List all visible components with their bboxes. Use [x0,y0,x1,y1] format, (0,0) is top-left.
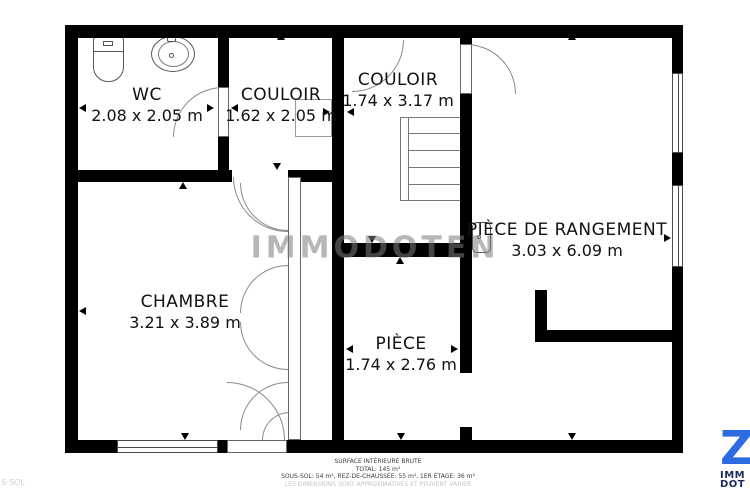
wall-segment [672,153,683,185]
dimension-arrow [79,307,86,315]
dimension-arrow [207,104,214,112]
room-label-couloir-2: COULOIR 1.74 x 3.17 m [342,70,454,111]
room-label-chambre: CHAMBRE 3.21 x 3.89 m [129,292,241,333]
room-dimensions: 1.74 x 2.76 m [345,354,457,375]
door-leaf [460,44,472,94]
surface-breakdown: SOUS-SOL: 54 m², REZ-DE-CHAUSSÉE: 55 m²,… [281,473,475,481]
room-label-wc: WC 2.08 x 2.05 m [91,85,203,126]
wall-segment [672,267,683,453]
stair-tread [408,133,460,134]
brand-logo-text-2: DOT [720,480,750,489]
dimension-arrow [277,33,285,40]
dimension-arrow [79,104,86,112]
room-dimensions: 1.62 x 2.05 m [225,105,337,126]
closet-door-track [288,177,301,440]
door-swing-arc [240,265,288,313]
room-label-couloir-1: COULOIR 1.62 x 2.05 m [225,85,337,126]
window-pane-line [118,447,217,448]
room-dimensions: 3.21 x 3.89 m [129,312,241,333]
dimension-arrow [568,33,576,40]
surface-title: SURFACE INTÉRIEURE BRUTE [281,458,475,466]
stair-tread [408,184,460,185]
room-dimensions: 2.08 x 2.05 m [91,105,203,126]
surface-summary: SURFACE INTÉRIEURE BRUTE TOTAL: 145 m² S… [281,458,475,488]
room-name: CHAMBRE [129,292,241,312]
wall-segment [65,25,78,453]
dimension-arrow [397,433,405,440]
wall-segment [460,427,472,453]
floor-plan-canvas: WC 2.08 x 2.05 m COULOIR 1.62 x 2.05 m C… [0,0,750,500]
window [672,73,683,153]
stair-tread [408,167,460,168]
stairs-rail [408,118,409,200]
dimension-arrow [179,182,187,189]
room-name: PIÈCE [345,334,457,354]
wall-segment [65,170,232,182]
stair-tread [408,150,460,151]
stairs-icon [400,117,461,201]
wall-segment [672,25,683,73]
door-swing-arc [466,44,516,94]
dimension-arrow [181,433,189,440]
wall-segment [535,330,683,342]
room-dimensions: 1.74 x 3.17 m [342,90,454,111]
window [117,440,218,453]
door-swing-arc [240,183,288,231]
door-swing-arc [240,322,288,370]
brand-logo-glyph: Z [720,425,750,471]
toilet-flush-button [103,41,113,46]
dimension-arrow [273,163,281,170]
room-name: COULOIR [225,85,337,105]
wall-segment [65,25,683,38]
dimension-arrow [568,433,576,440]
brand-logo: Z IMM DOT [720,425,750,489]
surface-total: TOTAL: 145 m² [281,466,475,474]
toilet-seat-line [93,51,124,52]
room-name: COULOIR [342,70,454,90]
wall-segment [218,38,229,87]
room-name: WC [91,85,203,105]
floor-name-fragment: S-SOL [1,478,25,487]
door-sill [227,440,287,453]
watermark-text: IMMODOTEN [251,231,500,266]
window-pane-line [678,74,679,152]
sink-drain [169,53,174,58]
room-label-piece: PIÈCE 1.74 x 2.76 m [345,334,457,375]
window [672,185,683,267]
surface-disclaimer: LES DIMENSIONS SONT APPROXIMATIVES ET PE… [281,481,475,489]
window-pane-line [678,186,679,266]
